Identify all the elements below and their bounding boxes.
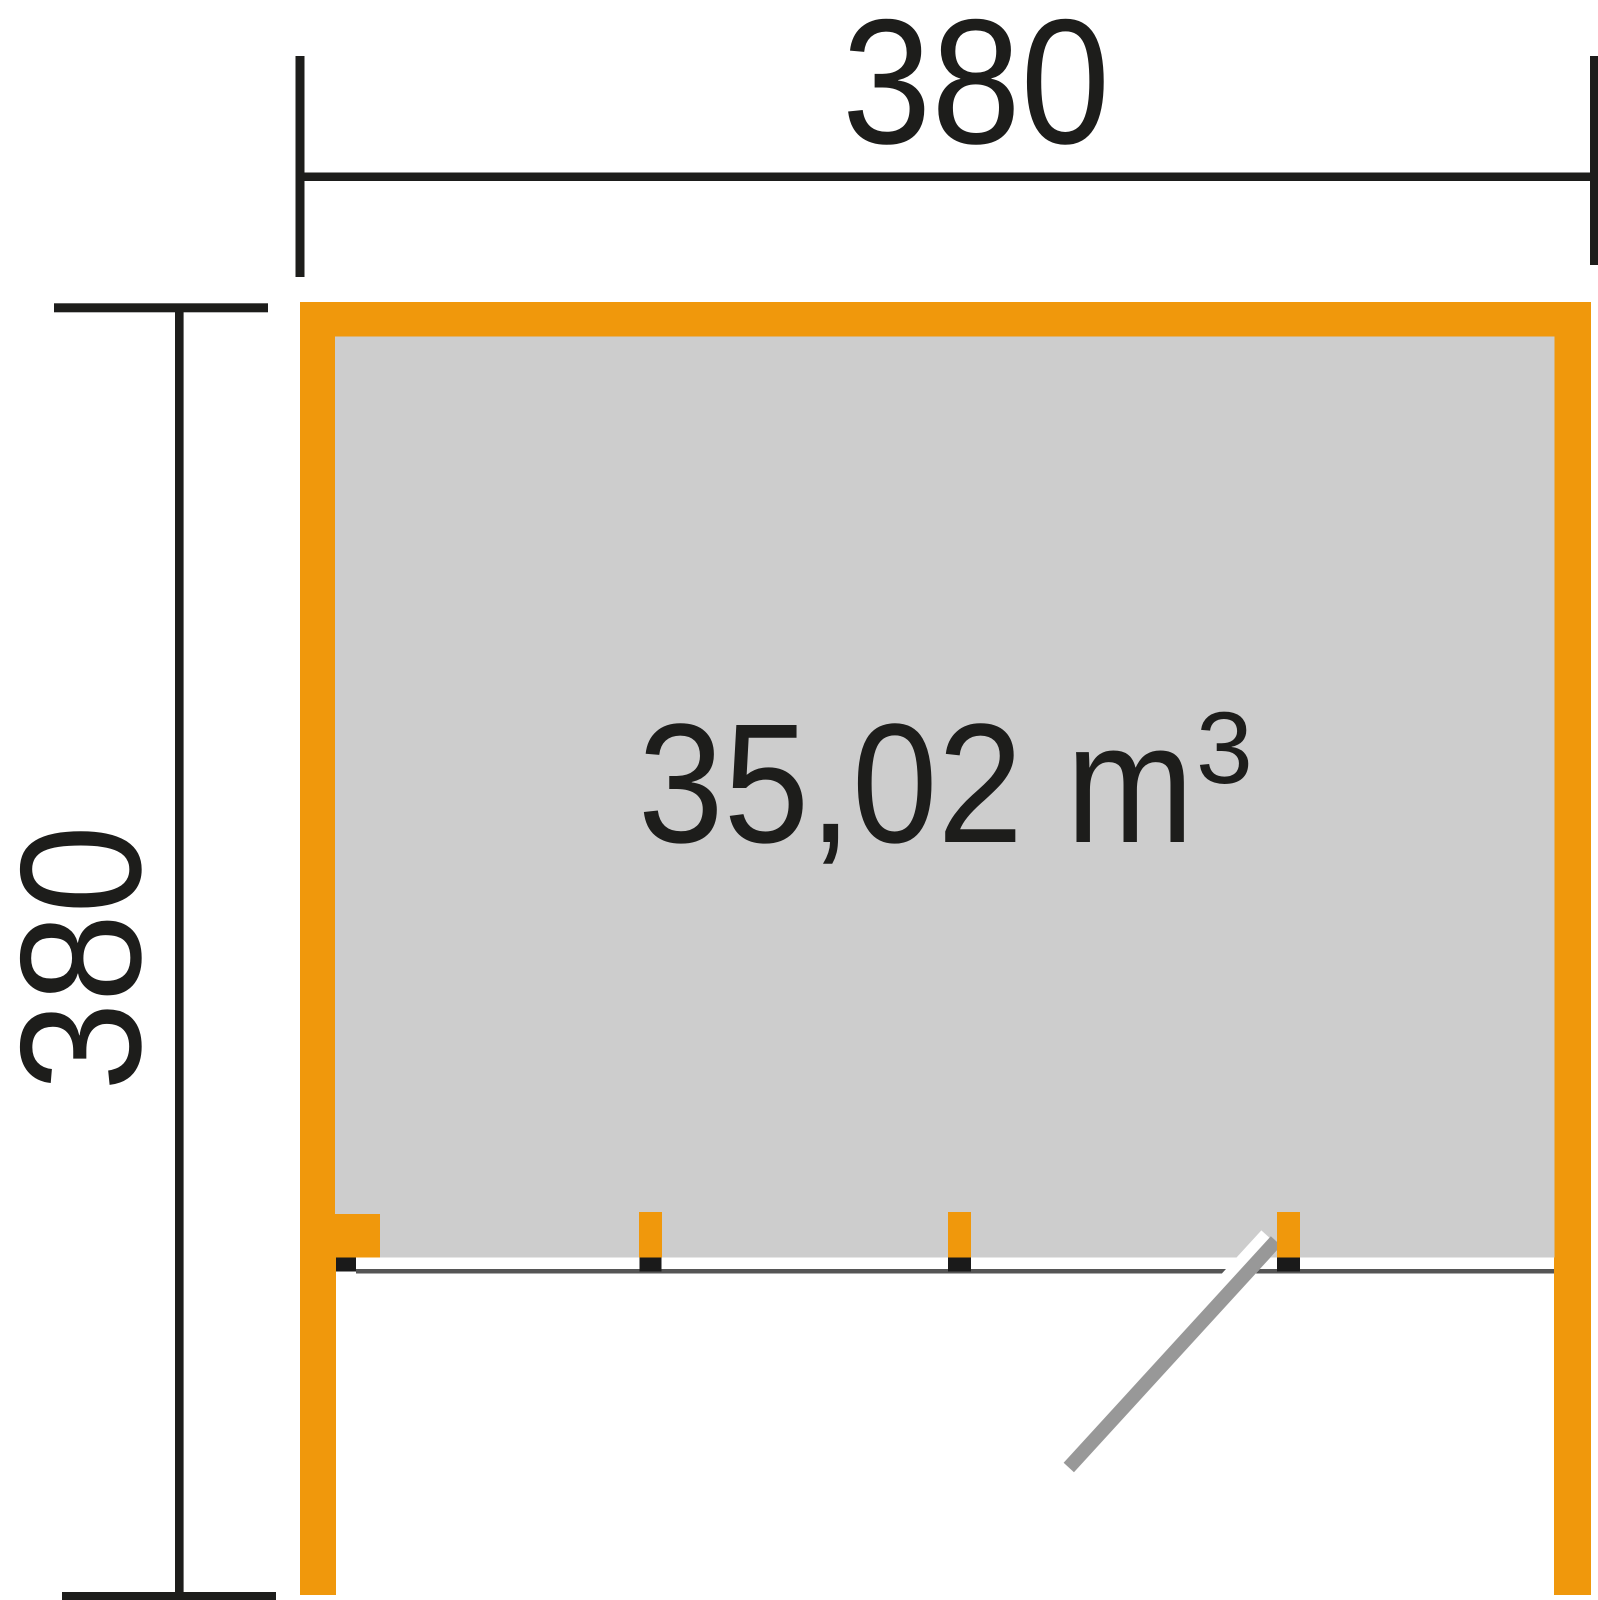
svg-text:3: 3 [1196, 691, 1253, 805]
svg-text:380: 380 [0, 825, 177, 1091]
svg-text:380: 380 [842, 0, 1110, 181]
svg-text:35,02 m: 35,02 m [638, 689, 1194, 879]
